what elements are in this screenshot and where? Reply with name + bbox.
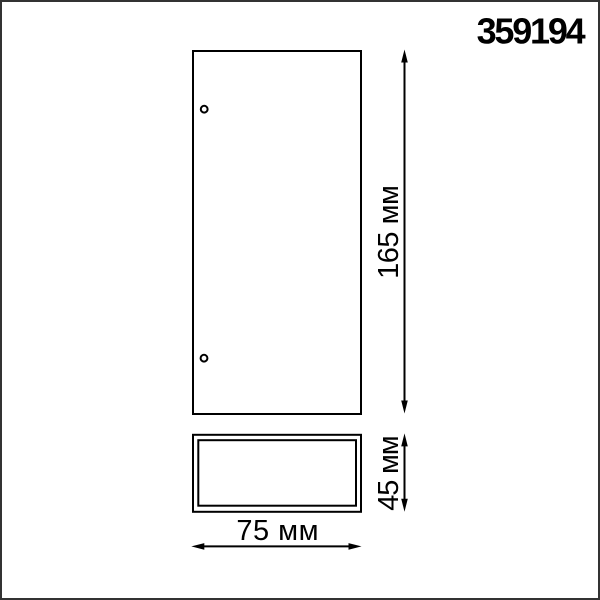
- svg-text:45 мм: 45 мм: [373, 436, 405, 510]
- svg-text:165 мм: 165 мм: [373, 186, 405, 279]
- svg-text:359194: 359194: [477, 11, 586, 52]
- svg-text:75 мм: 75 мм: [236, 515, 319, 547]
